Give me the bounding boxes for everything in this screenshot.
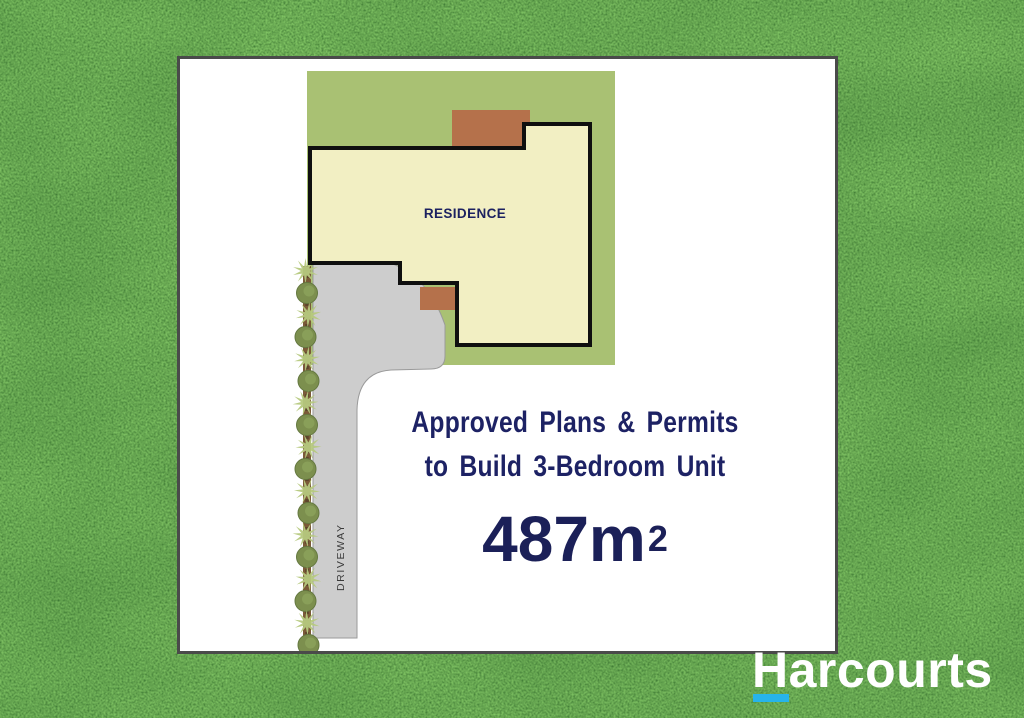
shrub-highlight [305,506,316,517]
area-exponent: 2 [648,518,668,559]
shrub-highlight [302,462,313,473]
structure-top [452,110,530,148]
brand-accent-bar [753,694,789,702]
shrub-highlight [302,594,313,605]
shrub-highlight [305,374,316,385]
structure-bottom [420,287,455,310]
headline-line1: Approved Plans & Permits [386,401,763,445]
area-value: 487m [482,503,646,575]
shrub-highlight [304,550,315,561]
shrub-highlight [304,418,315,429]
site-plan-card: RESIDENCE DRIVEWAY Approved Plans & Perm… [177,56,838,654]
shrub-highlight [305,638,316,649]
shrub-highlight [302,330,313,341]
marketing-image: RESIDENCE DRIVEWAY Approved Plans & Perm… [0,0,1024,718]
residence-label: RESIDENCE [424,206,506,221]
headline-line2: to Build 3-Bedroom Unit [386,445,763,489]
headline: Approved Plans & Permits to Build 3-Bedr… [386,401,763,489]
shrub-highlight [304,286,315,297]
harcourts-logo: Harcourts [752,645,993,695]
brand-name: Harcourts [752,642,993,698]
area-figure: 487m2 [345,507,805,571]
